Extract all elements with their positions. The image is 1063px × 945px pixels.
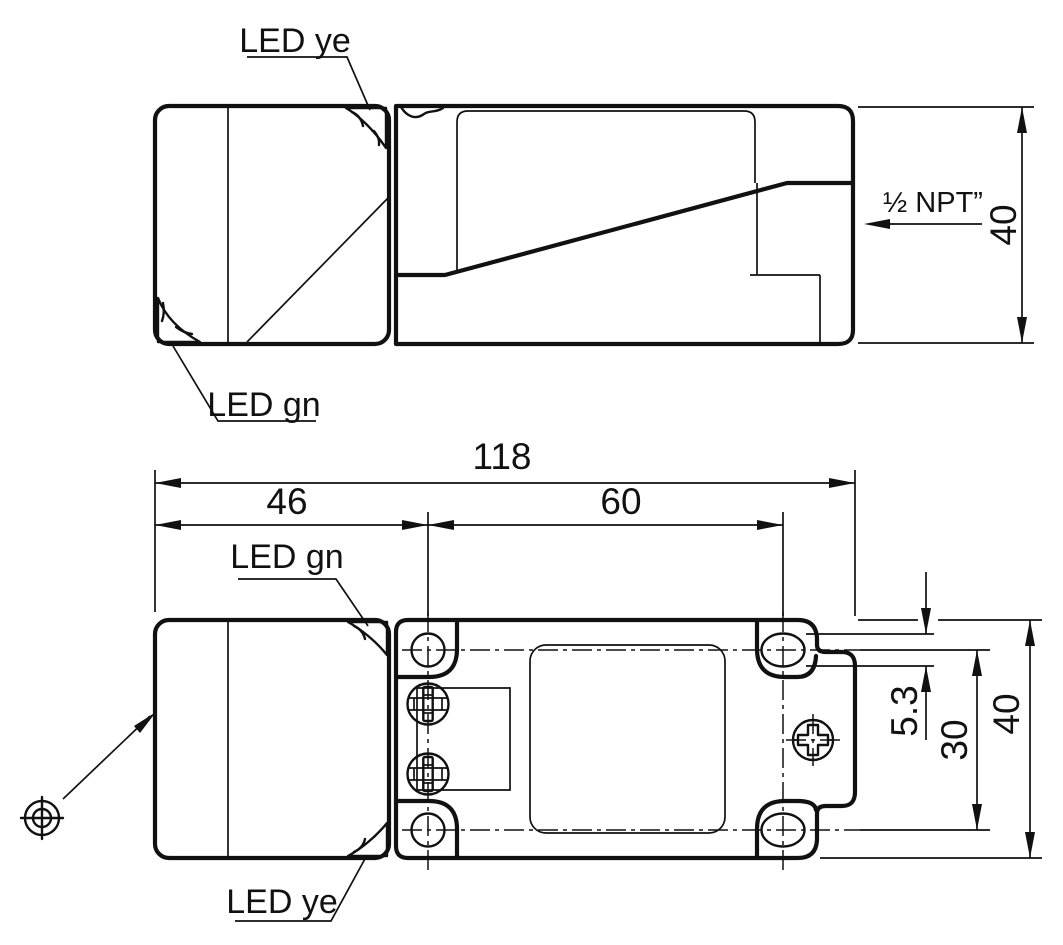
sensing-direction-arrow bbox=[134, 712, 156, 733]
plan-view: LED gn LED ye 118 bbox=[21, 436, 1042, 921]
sensor-head-side bbox=[155, 106, 389, 344]
sensing-window bbox=[530, 645, 725, 833]
plan-dimensions: 118 46 60 5.3 bbox=[155, 436, 1042, 858]
plan-led-green-label: LED gn bbox=[230, 538, 343, 576]
dim-hole-spacing-height-text: 30 bbox=[934, 719, 975, 760]
pocket-bottom-left bbox=[397, 801, 457, 857]
pocket-bottom-right bbox=[757, 801, 816, 857]
led-window-green-plan-icon bbox=[348, 622, 387, 655]
technical-drawing-page: LED ye LED gn ½ NPT” 40 bbox=[0, 0, 1063, 945]
side-led-green-label: LED gn bbox=[207, 386, 320, 424]
conduit-arrow-icon bbox=[864, 219, 890, 229]
housing-plan bbox=[396, 612, 860, 872]
sensing-direction-target-icon bbox=[21, 712, 156, 839]
dim-overall-length: 118 bbox=[155, 436, 855, 488]
housing-side bbox=[396, 106, 853, 344]
side-view: LED ye LED gn ½ NPT” 40 bbox=[155, 22, 1034, 424]
led-window-yellow-icon bbox=[346, 108, 386, 148]
dim-head-length: 46 60 bbox=[155, 481, 783, 530]
dim-hole-spacing-length-text: 60 bbox=[600, 481, 641, 522]
plan-led-yellow-label: LED ye bbox=[226, 883, 338, 921]
gasket-notch bbox=[401, 107, 443, 117]
cover-inner-contour bbox=[457, 111, 755, 272]
side-height-dim-text: 40 bbox=[983, 204, 1024, 245]
cover-screw-phillips-icon bbox=[786, 714, 840, 766]
side-led-yellow-label: LED ye bbox=[239, 22, 351, 60]
cover-slope-edge bbox=[396, 183, 853, 275]
dim-plan-height: 40 bbox=[986, 620, 1035, 858]
head-outline-plan bbox=[155, 620, 389, 858]
sensor-head-plan bbox=[155, 620, 389, 858]
dim-mount-slot-width: 5.3 bbox=[884, 572, 931, 740]
led-window-yellow-plan-icon bbox=[348, 823, 387, 856]
side-annotations: LED ye LED gn ½ NPT” 40 bbox=[173, 22, 1034, 424]
clamp-plate bbox=[417, 688, 510, 790]
sensor-dimension-drawing: LED ye LED gn ½ NPT” 40 bbox=[0, 0, 1063, 945]
head-diagonal-line bbox=[247, 198, 388, 342]
plan-annotations: LED gn LED ye bbox=[226, 538, 368, 921]
dim-head-length-text: 46 bbox=[266, 481, 307, 522]
terminal-step-lines bbox=[750, 183, 820, 343]
head-outline bbox=[155, 106, 389, 344]
pocket-top-left bbox=[397, 621, 457, 677]
housing-outline-plan bbox=[396, 620, 855, 858]
dim-overall-length-text: 118 bbox=[473, 436, 532, 477]
conduit-thread-label: ½ NPT” bbox=[883, 187, 983, 219]
dim-plan-height-text: 40 bbox=[986, 693, 1027, 734]
led-window-green-icon bbox=[158, 298, 200, 342]
dim-hole-spacing-height: 30 bbox=[934, 650, 982, 830]
pocket-top-right bbox=[757, 621, 816, 677]
dim-mount-slot-width-text: 5.3 bbox=[884, 685, 925, 736]
side-led-yellow-leader bbox=[247, 57, 370, 110]
